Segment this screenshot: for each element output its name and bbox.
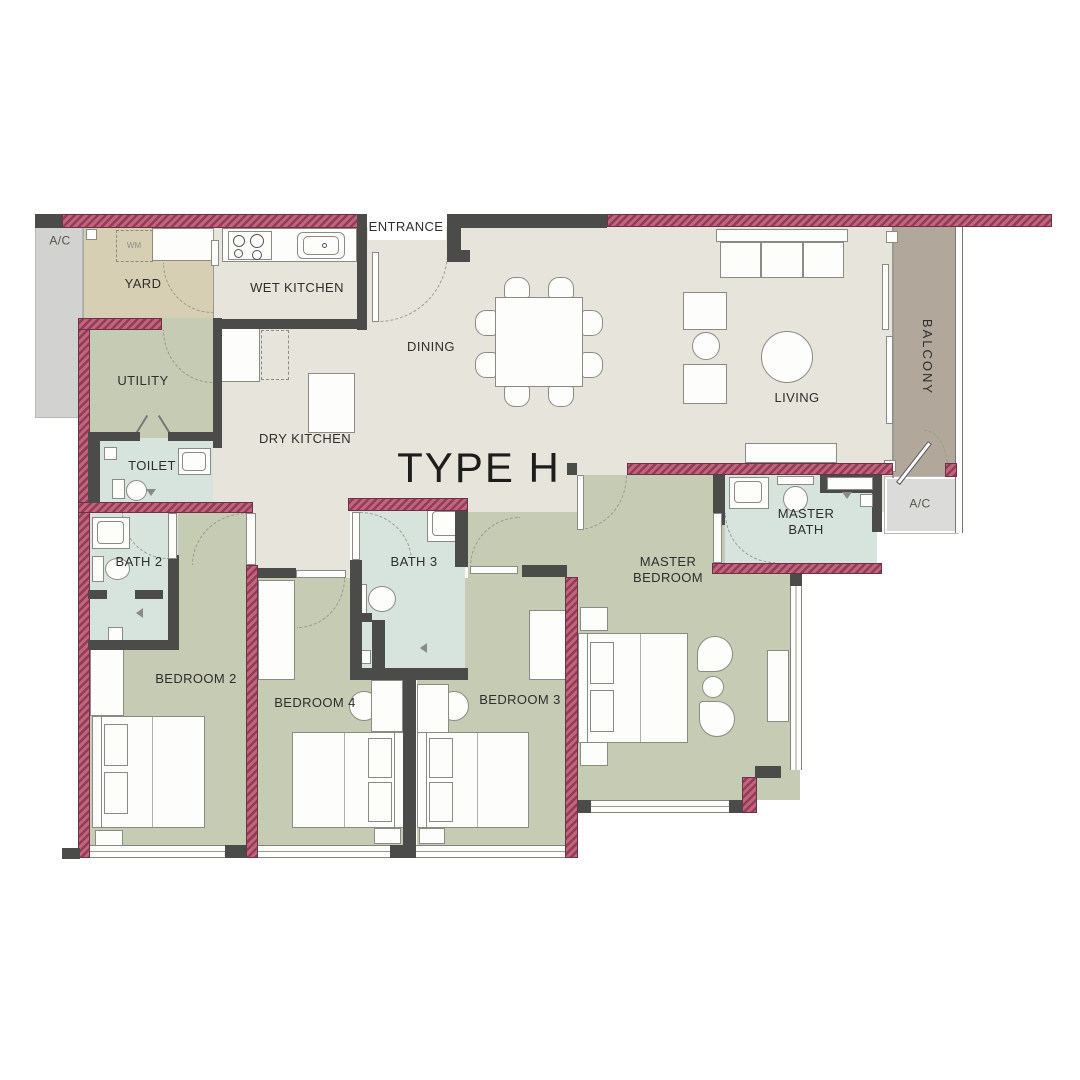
label-yard: YARD (125, 276, 162, 292)
door-leaf-entrance (372, 252, 379, 322)
wall-segment (258, 568, 296, 578)
wall-exterior (712, 563, 882, 574)
pillow (429, 782, 453, 822)
label-dining: DINING (407, 339, 455, 355)
label-bath3: BATH 3 (391, 554, 438, 570)
dining-table (495, 297, 583, 387)
label-living: LIVING (774, 390, 819, 406)
bed-headboard (578, 633, 588, 743)
wall-exterior (607, 214, 1052, 227)
door-leaf (713, 513, 722, 563)
dining-chair (475, 310, 496, 336)
label-dry-kitchen: DRY KITCHEN (259, 431, 351, 447)
side-table (692, 332, 720, 360)
wall-exterior (78, 318, 162, 330)
wall-segment (372, 620, 385, 670)
label-ac-left: A/C (49, 234, 70, 249)
pillow (104, 772, 128, 814)
label-balcony: BALCONY (919, 319, 935, 395)
window-bedrooms-bottom (90, 845, 566, 858)
wall-segment (135, 590, 163, 599)
stove-burner (252, 250, 262, 260)
dry-kitchen-counter (218, 328, 260, 382)
dining-chair (475, 352, 496, 378)
floor-plan: WM (0, 0, 1080, 1080)
hallway-floor (253, 498, 350, 578)
bed-headboard (417, 732, 427, 828)
label-master-bath-line2: BATH (778, 522, 835, 538)
wall-segment (567, 463, 577, 475)
shower-head-icon (136, 608, 143, 618)
sink-basin (182, 452, 206, 471)
plan-title: TYPE H (397, 444, 561, 492)
dry-kitchen-cabinet-dashed (261, 330, 289, 380)
stove-burner (233, 235, 245, 247)
dining-chair (582, 310, 603, 336)
pillow (368, 738, 392, 778)
pillow (590, 642, 614, 684)
toilet-tank (92, 556, 104, 582)
wall-segment (168, 555, 179, 650)
label-ac-right: A/C (909, 497, 930, 512)
bed-fold-line (152, 717, 153, 827)
desk (371, 680, 403, 732)
washer-label: WM (127, 241, 141, 251)
shower-head-icon (420, 643, 427, 653)
wall-exterior (742, 777, 757, 813)
yard-counter (152, 228, 214, 261)
wall-segment (62, 848, 80, 859)
sink-basin (97, 521, 124, 544)
label-master-bedroom: MASTER BEDROOM (633, 554, 703, 587)
dining-chair (548, 277, 574, 298)
label-master-bedroom-line1: MASTER (633, 554, 703, 570)
door-frame-block (886, 231, 898, 243)
label-utility: UTILITY (117, 373, 168, 389)
label-master-bath-line1: MASTER (778, 506, 835, 522)
armchair (683, 364, 727, 404)
shower-head-icon (842, 492, 852, 499)
sofa-cushion (761, 242, 803, 278)
door-leaf (470, 566, 518, 574)
toilet-bowl-icon (126, 480, 147, 501)
bed-fold-line (640, 634, 641, 742)
wall-segment (522, 565, 567, 577)
nightstand (95, 830, 123, 846)
wall-segment (88, 640, 179, 650)
toilet-tank (112, 479, 125, 499)
wall-segment (403, 678, 416, 858)
tv-console (745, 443, 837, 463)
shower-head-icon (146, 489, 156, 496)
door-leaf (352, 512, 360, 560)
round-table (702, 676, 724, 698)
sofa-cushion (803, 242, 844, 278)
sink-tap (322, 243, 327, 248)
pillow (104, 724, 128, 766)
shower-niche (827, 477, 873, 490)
wardrobe (529, 610, 566, 680)
window-master-bottom (578, 800, 744, 813)
label-wet-kitchen: WET KITCHEN (250, 280, 344, 296)
nightstand (580, 607, 608, 631)
sofa-cushion (720, 242, 761, 278)
floor-trap (860, 494, 873, 507)
lounge-chair (699, 701, 735, 737)
wall-segment (168, 432, 213, 441)
dining-chair (504, 277, 530, 298)
kitchen-island (308, 373, 355, 433)
nightstand (374, 828, 401, 844)
balcony-railing (955, 227, 963, 533)
wall-segment (88, 590, 107, 599)
label-bedroom3: BEDROOM 3 (479, 692, 561, 708)
wall-segment (755, 766, 781, 778)
wall-exterior (246, 565, 258, 858)
wall-segment (447, 250, 470, 262)
sink-basin (734, 481, 762, 503)
wall-segment (790, 574, 802, 586)
desk (417, 684, 449, 736)
lounge-chair (697, 636, 733, 672)
wardrobe (90, 648, 124, 716)
dining-chair (582, 352, 603, 378)
door-leaf (296, 570, 346, 578)
wall-segment (88, 438, 100, 503)
wall-exterior (348, 498, 468, 511)
sliding-door-panel (882, 264, 889, 330)
wall-segment (578, 800, 591, 813)
wall-segment (350, 613, 372, 622)
sink-basin (303, 236, 339, 255)
label-master-bedroom-line2: BEDROOM (633, 570, 703, 586)
wall-exterior (78, 318, 90, 858)
label-toilet: TOILET (128, 458, 176, 474)
coffee-table (761, 331, 813, 383)
label-entrance: ENTRANCE (369, 219, 444, 235)
wall-exterior (945, 463, 957, 477)
wall-segment (357, 214, 367, 330)
dining-chair (504, 386, 530, 407)
bed-fold-line (477, 733, 478, 827)
label-bath2: BATH 2 (116, 554, 163, 570)
nightstand (580, 742, 608, 766)
nightstand (419, 828, 445, 844)
sofa-back (716, 229, 848, 242)
stove-burner (234, 249, 243, 258)
pillow (368, 782, 392, 822)
door-leaf (577, 475, 584, 530)
label-master-bath: MASTER BATH (778, 506, 835, 539)
wall-exterior (62, 214, 367, 228)
wall-exterior (565, 577, 578, 858)
wall-segment (390, 845, 404, 858)
wardrobe (258, 580, 295, 680)
ac-ledge-left (35, 227, 83, 418)
sliding-door-panel (886, 336, 893, 424)
bed-fold-line (344, 733, 345, 827)
door-leaf (246, 513, 256, 565)
wall-exterior (627, 463, 893, 475)
bed-headboard (92, 716, 102, 828)
toilet-tank (777, 476, 814, 485)
yard-window-block (86, 229, 97, 240)
label-bedroom4: BEDROOM 4 (274, 695, 356, 711)
wall-segment (215, 319, 367, 329)
wall-segment (35, 214, 62, 228)
door-leaf (168, 513, 177, 559)
stove-burner (250, 234, 264, 248)
wall-segment (213, 318, 222, 448)
wall-segment (729, 800, 742, 813)
label-bedroom2: BEDROOM 2 (155, 671, 237, 687)
toilet-bowl-icon (368, 586, 396, 612)
door-leaf (211, 240, 219, 266)
pillow (590, 690, 614, 732)
pillow (429, 738, 453, 778)
armchair (683, 292, 727, 330)
wall-exterior (78, 502, 253, 513)
wall-segment (455, 511, 468, 567)
dresser (767, 650, 789, 722)
window-master-right (790, 578, 802, 770)
dining-chair (548, 386, 574, 407)
wall-segment (225, 845, 246, 858)
floor-trap (104, 447, 117, 460)
wall-segment (447, 214, 607, 228)
